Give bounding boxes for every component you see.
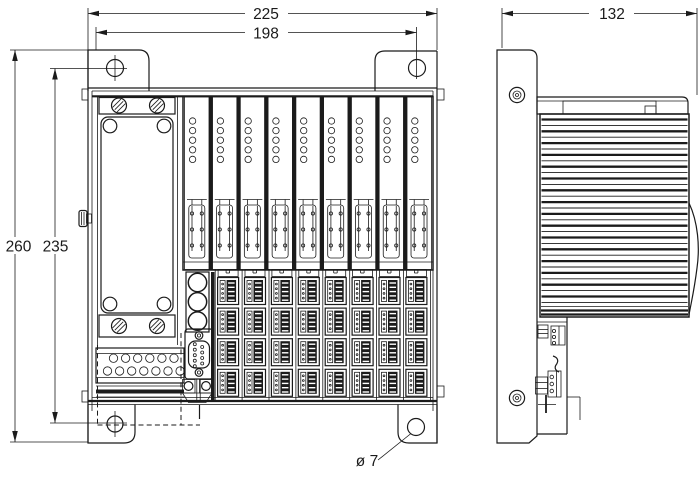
- terminal-pin-strip: [301, 342, 306, 363]
- dim-label-hole-diameter: ø 7: [356, 453, 378, 470]
- terminal-pin: [249, 358, 251, 360]
- terminal-pin-strip: [301, 281, 306, 302]
- terminal-pin: [249, 297, 251, 299]
- thumbscrew: [79, 211, 92, 227]
- io-module-slat: [240, 97, 265, 270]
- terminal-pin-strip: [247, 281, 252, 302]
- left-edge-lug-top: [82, 89, 88, 100]
- terminal-pin: [383, 283, 385, 285]
- terminal-pin: [249, 354, 251, 356]
- module-led: [217, 137, 223, 143]
- terminal-pin: [276, 314, 278, 316]
- db9-body: [185, 329, 213, 379]
- strip-screw: [115, 367, 123, 375]
- module-led: [384, 137, 390, 143]
- module-led: [412, 147, 418, 153]
- terminal-pin: [222, 318, 224, 320]
- dim-depth: 132: [502, 4, 697, 23]
- db9-pin: [201, 357, 204, 360]
- terminal-pin-strip: [247, 311, 252, 332]
- terminal-pin: [302, 297, 304, 299]
- terminal-pin: [329, 297, 331, 299]
- module-led: [301, 118, 307, 124]
- terminal-pin: [356, 293, 358, 295]
- module-led: [245, 137, 251, 143]
- terminal-pin: [410, 349, 412, 351]
- module-led: [356, 147, 362, 153]
- terminal-pin: [410, 293, 412, 295]
- module-led: [356, 127, 362, 133]
- terminal-pin: [356, 288, 358, 290]
- io-module-row: [185, 97, 432, 270]
- module-plug: [272, 205, 288, 258]
- module-led: [217, 156, 223, 162]
- terminal-pin: [276, 283, 278, 285]
- module-plug: [217, 205, 233, 258]
- mounting-hole-top-right: [409, 60, 426, 77]
- side-cable-bulge: [689, 203, 698, 315]
- terminal-pin-strip: [220, 342, 225, 363]
- terminal-pin: [249, 344, 251, 346]
- terminal-pin: [222, 283, 224, 285]
- screw-ring: [513, 91, 521, 99]
- module-led: [412, 118, 418, 124]
- side-view: [497, 50, 698, 443]
- terminal-pin: [222, 328, 224, 330]
- terminal-pin: [302, 358, 304, 360]
- terminal-pin: [249, 328, 251, 330]
- side-screw-top: [509, 87, 524, 102]
- terminal-pin: [302, 349, 304, 351]
- module-plug: [411, 205, 427, 258]
- component-pin: [550, 389, 554, 393]
- module-led: [273, 156, 279, 162]
- terminal-pin: [356, 358, 358, 360]
- fuse-circle: [188, 312, 206, 330]
- terminal-pin-strip: [220, 311, 225, 332]
- slotted-screws: [112, 98, 165, 334]
- cpu-column: [98, 97, 178, 345]
- db9-pins: [193, 343, 203, 368]
- blank-cover-panel: [101, 117, 173, 313]
- terminal-pin: [329, 375, 331, 377]
- terminal-pin: [410, 380, 412, 382]
- module-led: [217, 147, 223, 153]
- terminal-pin-strip: [408, 372, 413, 393]
- screw-ring: [509, 390, 524, 405]
- strip-screw: [146, 354, 154, 362]
- terminal-pin: [302, 293, 304, 295]
- module-led: [328, 137, 334, 143]
- housing-top-cap: [537, 97, 688, 114]
- side-mounting-plate: [497, 50, 537, 443]
- heatsink-body: [540, 114, 689, 317]
- terminal-strip: [96, 348, 184, 397]
- terminal-pin-strip: [382, 342, 387, 363]
- terminal-pin: [302, 283, 304, 285]
- module-plug: [300, 205, 316, 258]
- terminal-block-grid: [215, 269, 430, 400]
- terminal-pin-strip: [328, 281, 333, 302]
- cap-recess: [563, 101, 656, 114]
- mounting-hole-bottom-right: [408, 419, 425, 436]
- db9-pin: [201, 346, 204, 349]
- terminal-pin-strip: [355, 281, 360, 302]
- io-module-slat: [296, 97, 321, 270]
- terminal-pin: [356, 328, 358, 330]
- fuse-frame: [186, 272, 209, 332]
- terminal-pin: [329, 314, 331, 316]
- strip-screw: [134, 354, 142, 362]
- module-separator: [209, 97, 213, 270]
- module-separator: [292, 97, 296, 270]
- thumbscrew-head: [79, 211, 87, 227]
- front-view: [79, 50, 444, 443]
- screw-slot: [115, 322, 123, 330]
- terminal-pin: [302, 314, 304, 316]
- terminal-pin: [276, 328, 278, 330]
- dim-label-depth: 132: [599, 6, 625, 23]
- terminal-pin: [222, 297, 224, 299]
- module-separator: [375, 97, 379, 270]
- terminal-pin-strip: [274, 311, 279, 332]
- terminal-pin: [329, 293, 331, 295]
- terminal-pin: [329, 318, 331, 320]
- module-led: [412, 127, 418, 133]
- terminal-pin-strip: [247, 372, 252, 393]
- db9-connector: [183, 329, 214, 419]
- arrowhead: [96, 30, 107, 35]
- terminal-pin-strip: [328, 311, 333, 332]
- terminal-pin: [410, 375, 412, 377]
- screw-ring: [513, 394, 521, 402]
- terminal-pin: [249, 318, 251, 320]
- terminal-pin: [249, 349, 251, 351]
- module-separator: [236, 97, 240, 270]
- terminal-pin: [249, 314, 251, 316]
- io-module-slat: [323, 97, 348, 270]
- terminal-pin: [383, 293, 385, 295]
- module-led: [301, 147, 307, 153]
- terminal-pin: [249, 293, 251, 295]
- terminal-pin-strip: [301, 311, 306, 332]
- db9-pin: [201, 362, 204, 365]
- terminal-pin: [329, 288, 331, 290]
- clamp-screw: [202, 382, 211, 391]
- module-led: [384, 156, 390, 162]
- terminal-strip-screws: [103, 354, 184, 375]
- strip-screw: [128, 367, 136, 375]
- arrowhead: [502, 11, 513, 16]
- module-led: [328, 118, 334, 124]
- strip-screw: [121, 354, 129, 362]
- dim-label-hole-spacing-vertical: 235: [43, 239, 69, 256]
- db9-pin: [193, 354, 196, 357]
- module-led: [245, 118, 251, 124]
- module-led: [328, 127, 334, 133]
- strip-screw: [109, 354, 117, 362]
- terminal-pin: [410, 323, 412, 325]
- terminal-pin: [383, 297, 385, 299]
- module-led: [301, 156, 307, 162]
- component-pin: [552, 329, 555, 332]
- terminal-pin: [356, 389, 358, 391]
- module-led: [356, 156, 362, 162]
- panel-hole: [103, 297, 117, 311]
- terminal-pin: [249, 380, 251, 382]
- module-led: [384, 118, 390, 124]
- terminal-pin: [249, 283, 251, 285]
- fuse-circles: [188, 273, 206, 330]
- component-box: [538, 325, 548, 338]
- terminal-pin-strip: [301, 372, 306, 393]
- terminal-pin: [276, 354, 278, 356]
- terminal-pin-strip: [408, 342, 413, 363]
- arrowhead: [12, 50, 18, 61]
- terminal-pin-strip: [274, 342, 279, 363]
- dim-hole-spacing-horizontal: 198: [96, 24, 417, 43]
- terminal-pin: [410, 354, 412, 356]
- terminal-pin: [356, 323, 358, 325]
- io-module-slat: [212, 97, 237, 270]
- module-separator: [348, 97, 352, 270]
- module-separator: [264, 97, 268, 270]
- terminal-pin: [276, 344, 278, 346]
- terminal-pin-strip: [328, 372, 333, 393]
- terminal-pin: [222, 314, 224, 316]
- terminal-pin-strip: [382, 311, 387, 332]
- terminal-pin-strip: [408, 281, 413, 302]
- module-led: [273, 118, 279, 124]
- terminal-pin: [410, 283, 412, 285]
- module-led: [356, 118, 362, 124]
- mounting-tab-top-right: [375, 51, 437, 91]
- dim-label-overall-height: 260: [6, 239, 32, 256]
- terminal-pin: [410, 344, 412, 346]
- terminal-pin: [249, 389, 251, 391]
- terminal-pin: [276, 380, 278, 382]
- dim-hole-spacing-vertical: 235: [39, 69, 72, 424]
- db9-screw: [195, 369, 203, 377]
- terminal-pin: [383, 384, 385, 386]
- module-led: [245, 147, 251, 153]
- db9-pin: [201, 351, 204, 354]
- terminal-pin: [410, 297, 412, 299]
- arrowhead: [406, 30, 417, 35]
- terminal-pin-strip: [274, 281, 279, 302]
- terminal-pin: [302, 288, 304, 290]
- strip-screw: [170, 354, 178, 362]
- terminal-pin-strip: [355, 372, 360, 393]
- terminal-pin: [383, 314, 385, 316]
- module-separator: [320, 97, 324, 270]
- terminal-pin: [356, 354, 358, 356]
- terminal-pin: [276, 288, 278, 290]
- module-led: [217, 127, 223, 133]
- screw-ring: [516, 397, 519, 400]
- clamp-screw: [184, 382, 193, 391]
- terminal-pin: [302, 380, 304, 382]
- module-led: [301, 127, 307, 133]
- panel-hole: [103, 119, 117, 133]
- component-pin: [550, 382, 554, 386]
- terminal-pin: [383, 288, 385, 290]
- latch-hook: [553, 356, 559, 372]
- terminal-pin: [383, 349, 385, 351]
- module-led: [328, 156, 334, 162]
- module-led: [301, 137, 307, 143]
- terminal-pin: [383, 375, 385, 377]
- terminal-pin: [356, 318, 358, 320]
- terminal-pin: [276, 297, 278, 299]
- terminal-pin: [276, 293, 278, 295]
- terminal-pin: [410, 384, 412, 386]
- terminal-pin: [356, 314, 358, 316]
- leader-line: [378, 434, 411, 461]
- terminal-pin: [383, 380, 385, 382]
- terminal-pin: [410, 389, 412, 391]
- module-led: [273, 137, 279, 143]
- module-plug: [189, 205, 205, 258]
- terminal-pin: [356, 297, 358, 299]
- terminal-pin-strip: [408, 311, 413, 332]
- terminal-pin: [329, 384, 331, 386]
- terminal-pin-strip: [247, 342, 252, 363]
- screw-ring: [516, 94, 519, 97]
- db9-screw: [197, 371, 200, 374]
- db9-pin: [193, 343, 196, 346]
- panel-hole: [157, 119, 171, 133]
- terminal-pin: [383, 358, 385, 360]
- strip-screw: [103, 367, 111, 375]
- io-module-slat: [185, 97, 210, 270]
- module-led: [245, 127, 251, 133]
- terminal-pin-strip: [220, 372, 225, 393]
- strip-screw: [158, 354, 166, 362]
- strip-screw: [176, 367, 184, 375]
- db9-screw: [195, 332, 203, 340]
- terminal-pin: [276, 318, 278, 320]
- side-screw-bottom: [509, 390, 524, 405]
- io-module-slat: [407, 97, 432, 270]
- screw-slot: [153, 322, 161, 330]
- module-led: [328, 147, 334, 153]
- terminal-pin: [410, 288, 412, 290]
- fuse-circle: [188, 293, 206, 311]
- screw-ring: [509, 87, 524, 102]
- arrowhead: [52, 412, 58, 423]
- arrowhead: [12, 431, 18, 442]
- arrowhead: [52, 69, 58, 80]
- db9-pin: [193, 359, 196, 362]
- terminal-pin: [356, 344, 358, 346]
- dimension-drawing: 225 198 260 235: [0, 0, 700, 477]
- module-led: [189, 127, 195, 133]
- db9-screw: [197, 334, 200, 337]
- terminal-pin: [383, 323, 385, 325]
- io-module-slat: [268, 97, 293, 270]
- io-module-slat: [351, 97, 376, 270]
- terminal-pin: [276, 375, 278, 377]
- screw-slot: [115, 101, 123, 109]
- module-plug: [328, 205, 344, 258]
- terminal-pin: [383, 344, 385, 346]
- dim-hole-diameter: ø 7: [356, 434, 411, 471]
- terminal-pin: [249, 375, 251, 377]
- terminal-pin: [276, 358, 278, 360]
- component-pin: [550, 375, 554, 379]
- terminal-pin: [276, 384, 278, 386]
- module-led: [189, 147, 195, 153]
- db9-pin: [193, 348, 196, 351]
- module-led: [384, 147, 390, 153]
- io-module-slat: [379, 97, 404, 270]
- terminal-pin: [222, 344, 224, 346]
- terminal-pin: [222, 384, 224, 386]
- terminal-pin-strip: [355, 311, 360, 332]
- terminal-pin: [410, 358, 412, 360]
- terminal-pin: [302, 344, 304, 346]
- terminal-pin: [276, 349, 278, 351]
- module-separator: [403, 97, 407, 270]
- strip-screw: [164, 367, 172, 375]
- terminal-pin: [302, 318, 304, 320]
- fuse-circle: [188, 273, 206, 291]
- terminal-pin: [329, 354, 331, 356]
- module-led: [273, 147, 279, 153]
- terminal-pin-strip: [355, 342, 360, 363]
- db9-pin: [193, 365, 196, 368]
- terminal-pin: [410, 318, 412, 320]
- terminal-pin: [329, 349, 331, 351]
- terminal-pin: [329, 358, 331, 360]
- module-led: [189, 118, 195, 124]
- left-edge-lug-bottom: [82, 391, 88, 402]
- module-led: [384, 127, 390, 133]
- module-led: [245, 156, 251, 162]
- terminal-pin: [222, 354, 224, 356]
- terminal-pin: [329, 380, 331, 382]
- terminal-pin: [276, 323, 278, 325]
- terminal-pin: [356, 283, 358, 285]
- terminal-pin: [222, 375, 224, 377]
- terminal-pin: [302, 328, 304, 330]
- terminal-pin: [410, 328, 412, 330]
- screw-band-bottom: [99, 315, 175, 337]
- module-plug: [355, 205, 371, 258]
- terminal-pin: [302, 323, 304, 325]
- terminal-pin: [329, 328, 331, 330]
- module-led: [273, 127, 279, 133]
- terminal-pin: [410, 314, 412, 316]
- terminal-pin: [222, 323, 224, 325]
- terminal-pin: [356, 375, 358, 377]
- terminal-pin: [222, 349, 224, 351]
- mounting-tab-bottom-right: [398, 405, 437, 444]
- heatsink-fins: [542, 120, 688, 303]
- terminal-pin: [302, 384, 304, 386]
- module-led: [412, 137, 418, 143]
- dim-label-hole-spacing-horizontal: 198: [253, 26, 279, 43]
- mounting-tab-top-left: [88, 50, 149, 91]
- arrowhead: [88, 11, 99, 16]
- terminal-pin: [302, 375, 304, 377]
- terminal-pin-strip: [328, 342, 333, 363]
- terminal-pin: [249, 384, 251, 386]
- terminal-pin: [383, 328, 385, 330]
- terminal-pin: [383, 389, 385, 391]
- terminal-pin: [222, 288, 224, 290]
